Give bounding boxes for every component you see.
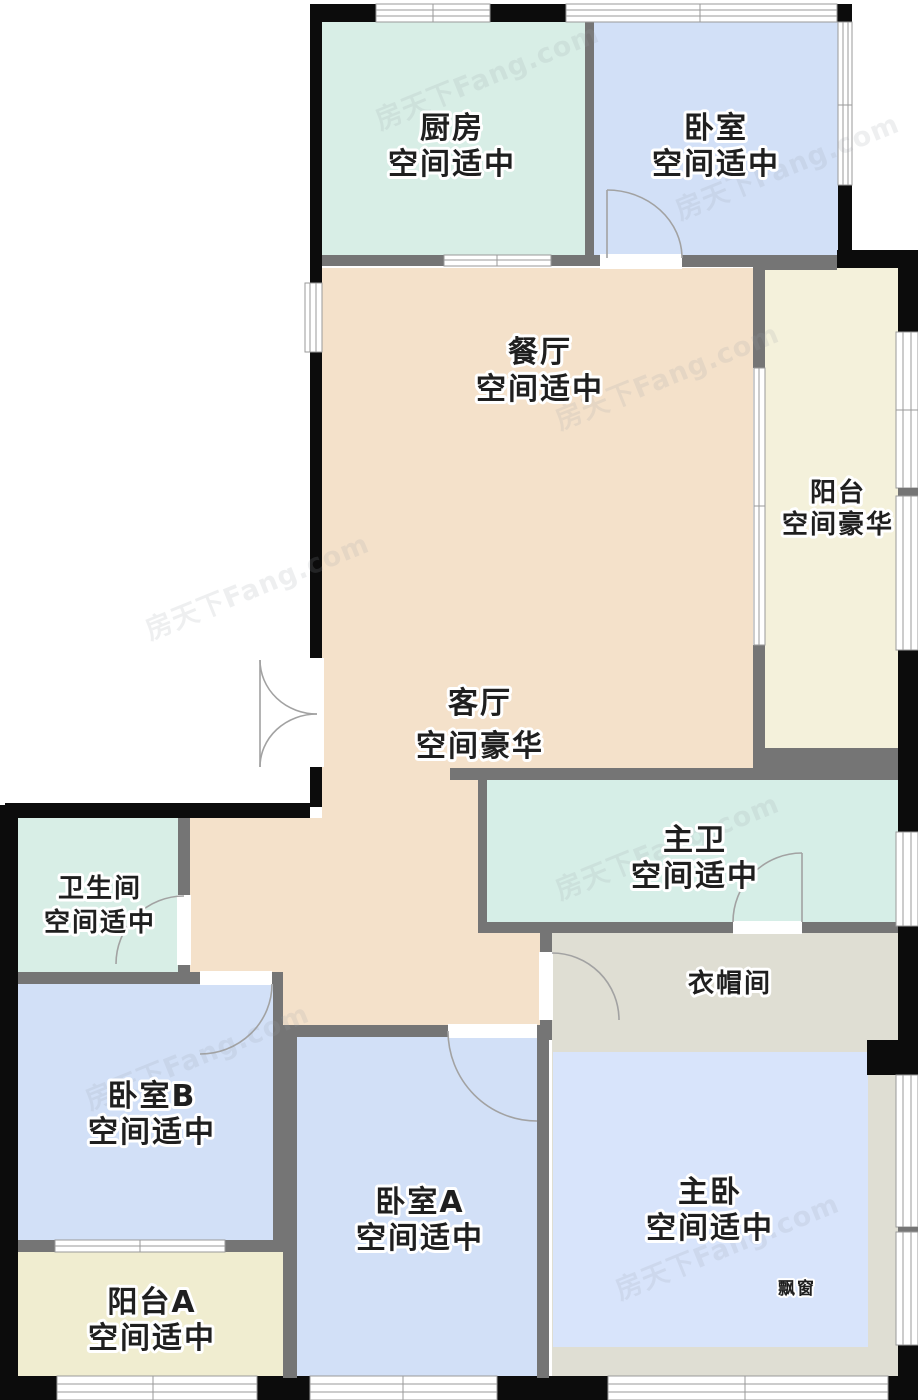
balcony-right-label: 阳台 <box>810 477 866 508</box>
master-bedroom-label: 主卧 <box>678 1175 742 1210</box>
balcony-right-area <box>765 268 898 748</box>
wall-leftwing-left <box>0 805 18 1400</box>
floorplan-canvas: 房天下Fang.com 房天下Fang.com 房天下Fang.com 房天下F… <box>0 0 918 1400</box>
wall-right-2 <box>898 650 918 768</box>
balcony-a-size-label: 空间适中 <box>88 1321 216 1356</box>
window-balcony-east-2 <box>896 496 918 650</box>
bathroom-size-label: 空间适中 <box>44 907 156 938</box>
wall-balcony-bottom <box>753 748 898 768</box>
balcony-a-label: 阳台A <box>107 1285 196 1320</box>
wall-left-below-door <box>310 765 322 807</box>
living-label: 客厅 <box>448 686 512 721</box>
living-size-label: 空间豪华 <box>416 729 544 764</box>
wall-masterbath-bottom <box>478 922 898 933</box>
wall-right-3 <box>898 768 918 832</box>
window-bottom-3 <box>608 1376 888 1400</box>
wall-masterbath-top <box>450 768 898 780</box>
wall-top-mid <box>490 4 566 22</box>
dining-label: 餐厅 <box>508 335 572 370</box>
hall-area-2 <box>190 818 478 933</box>
window-balcony-separator <box>754 368 765 645</box>
window-masterbath-east <box>896 832 918 926</box>
entrance-double-door <box>260 658 324 767</box>
window-top-right <box>566 4 837 22</box>
wall-bottom-corner-right <box>888 1376 918 1400</box>
wall-bedrooma-right <box>537 1025 549 1378</box>
master-bath-size-label: 空间适中 <box>631 859 759 894</box>
bedroom-top-label: 卧室 <box>684 111 748 146</box>
master-bedroom-size-label: 空间适中 <box>646 1211 774 1246</box>
kitchen-label: 厨房 <box>420 111 484 146</box>
master-bath-label: 主卫 <box>663 823 727 858</box>
wall-top-corner-right <box>837 4 852 22</box>
wall-balcony-top-inner <box>753 258 837 270</box>
bedroom-b-label: 卧室B <box>108 1079 197 1114</box>
window-kitchen-pass <box>444 255 551 266</box>
kitchen-size-label: 空间适中 <box>388 147 516 182</box>
bedroom-top-size-label: 空间适中 <box>652 147 780 182</box>
window-top-left <box>376 4 490 22</box>
wall-right-4 <box>898 926 918 1043</box>
dining-size-label: 空间适中 <box>476 372 604 407</box>
window-dining-west <box>305 283 322 352</box>
wall-right-1 <box>898 262 918 332</box>
floorplan-svg: 房天下Fang.com 房天下Fang.com 房天下Fang.com 房天下F… <box>0 0 918 1400</box>
hall-area-4 <box>283 982 540 1028</box>
wall-bedroom-right <box>838 185 852 258</box>
window-master-east-1 <box>896 1075 918 1227</box>
window-master-east-2 <box>896 1232 918 1345</box>
bathroom-label: 卫生间 <box>58 874 142 904</box>
wall-balcony-sep-lower <box>753 645 765 748</box>
bedroom-a-label: 卧室A <box>375 1185 464 1220</box>
bedroom-b-size-label: 空间适中 <box>88 1115 216 1150</box>
bedroom-a-size-label: 空间适中 <box>356 1221 484 1256</box>
balcony-right-size-label: 空间豪华 <box>782 509 894 540</box>
window-balcony-east-1 <box>896 332 918 488</box>
wall-kitchen-bottom-2 <box>551 255 600 266</box>
cloakroom-label: 衣帽间 <box>688 968 772 999</box>
window-bedroomb-balconya <box>55 1240 225 1252</box>
window-bottom-2 <box>310 1376 497 1400</box>
window-divider <box>898 1227 918 1232</box>
wall-bedrooma-left <box>283 1025 297 1378</box>
window-bottom-1 <box>57 1376 257 1400</box>
wall-leftwing-top <box>5 803 310 818</box>
wall-bottom-mid-right <box>497 1376 608 1400</box>
wall-right-stub <box>867 1040 918 1075</box>
wall-masterbath-left <box>478 768 487 933</box>
window-divider <box>898 488 918 496</box>
wall-bottom-mid-left <box>257 1376 310 1400</box>
bay-window-label: 飘窗 <box>778 1278 816 1299</box>
wall-kitchen-bottom-1 <box>322 255 444 266</box>
